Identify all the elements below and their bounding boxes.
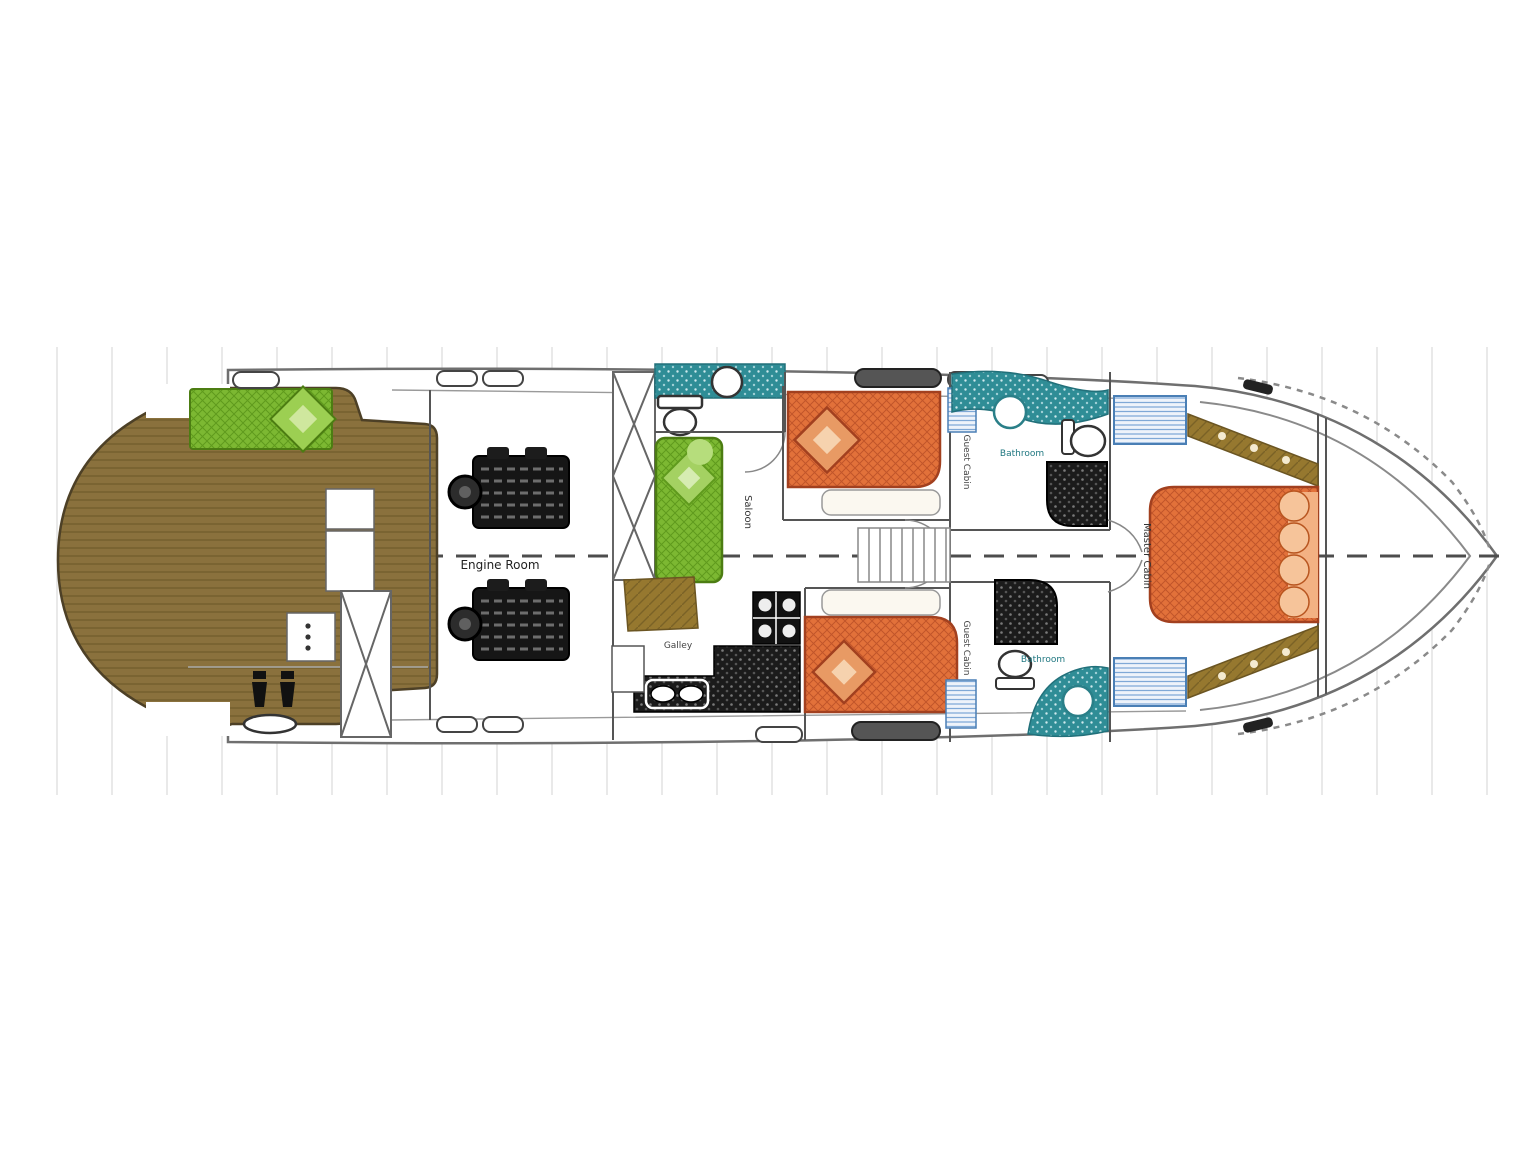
bathroom-label: Bathroom [1021,655,1065,665]
foot-bench [822,490,940,515]
guest-cabin-label: Guest Cabin [961,620,971,675]
sink-icon [1063,686,1093,716]
shower [995,580,1057,644]
shower [1047,462,1107,526]
master-cabin-label: Master Cabin [1141,523,1152,589]
yacht-floor-plan: Engine Room Saloon Galley [0,0,1533,1149]
corridor-stairs [858,528,950,582]
cockpit-box-upper [326,489,374,529]
hanging-locker-bottom [1114,658,1186,706]
cockpit-ladder [341,591,391,737]
cabin-bottom-hatch-dark [852,722,940,740]
sink-icon [994,396,1026,428]
control-panel [287,613,335,661]
saloon-label: Saloon [742,495,753,529]
fridge [612,646,644,692]
stern-cleat [244,715,296,733]
stove [753,592,800,644]
guest-cabin-label: Guest Cabin [961,434,971,489]
platform-notch-bottom [146,702,230,736]
engine-room-label: Engine Room [460,558,539,572]
foot-bench [822,590,940,615]
sink-icon [712,367,742,397]
nightstand [946,680,976,728]
cockpit-box-lower [326,531,374,591]
companionway-stairs [613,372,655,580]
steps-down [624,577,698,631]
hanging-locker-top [1114,396,1186,444]
galley-label: Galley [664,641,693,651]
floor-plan-svg: Engine Room Saloon Galley [0,0,1533,1149]
cabin-top-hatch-dark [855,369,941,387]
bathroom-label: Bathroom [1000,449,1044,459]
